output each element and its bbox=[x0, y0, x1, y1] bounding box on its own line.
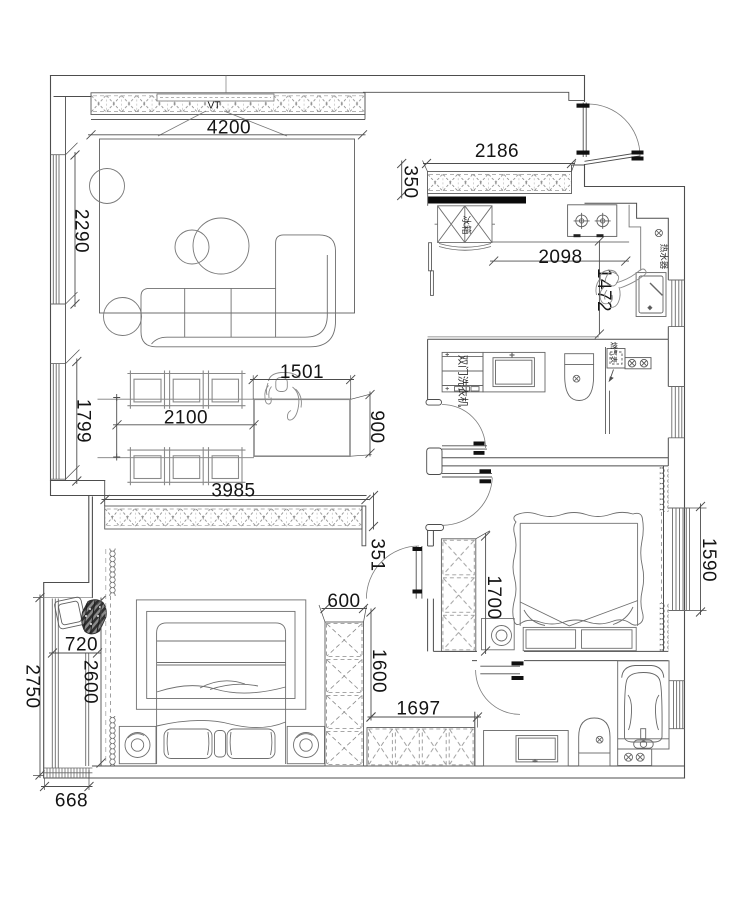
svg-text:1700: 1700 bbox=[483, 575, 504, 619]
svg-text:4200: 4200 bbox=[207, 117, 251, 138]
svg-text:2750: 2750 bbox=[22, 664, 43, 708]
svg-text:2186: 2186 bbox=[475, 141, 519, 162]
svg-text:2290: 2290 bbox=[71, 209, 92, 253]
svg-text:720: 720 bbox=[65, 634, 98, 655]
svg-text:冰箱: 冰箱 bbox=[460, 215, 472, 234]
svg-text:VT: VT bbox=[208, 101, 221, 112]
svg-text:351: 351 bbox=[367, 538, 388, 571]
svg-text:1600: 1600 bbox=[368, 649, 389, 693]
svg-text:2600: 2600 bbox=[80, 660, 101, 704]
svg-text:350: 350 bbox=[400, 165, 421, 198]
svg-text:2098: 2098 bbox=[538, 247, 582, 268]
svg-text:双门洗衣机: 双门洗衣机 bbox=[457, 355, 470, 408]
svg-text:1799: 1799 bbox=[73, 399, 94, 443]
svg-text:1590: 1590 bbox=[698, 538, 719, 582]
svg-text:668: 668 bbox=[55, 790, 88, 811]
svg-text:热水器: 热水器 bbox=[659, 244, 669, 270]
svg-text:600: 600 bbox=[327, 591, 360, 612]
svg-text:1697: 1697 bbox=[396, 698, 440, 719]
svg-text:900: 900 bbox=[366, 410, 387, 443]
svg-text:3985: 3985 bbox=[211, 480, 255, 501]
svg-text:1501: 1501 bbox=[280, 362, 324, 383]
svg-text:2100: 2100 bbox=[164, 407, 208, 428]
svg-text:燃气表: 燃气表 bbox=[610, 342, 619, 363]
